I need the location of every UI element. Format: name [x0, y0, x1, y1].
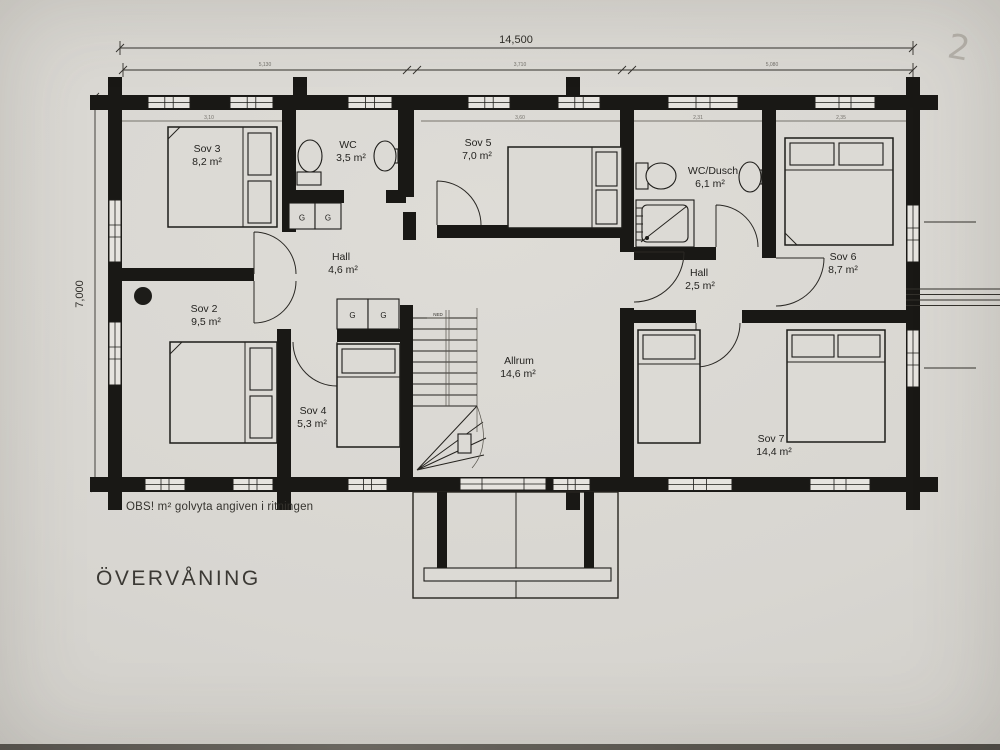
- svg-text:WC: WC: [339, 139, 357, 151]
- room-label-sov3: Sov 3 8,2 m²: [192, 143, 222, 168]
- bed-sov4: [337, 344, 400, 447]
- width-segment-2: 3,710: [514, 62, 527, 68]
- svg-text:G: G: [380, 311, 386, 320]
- svg-text:G: G: [325, 214, 331, 223]
- total-height-dimension: 7,000: [74, 280, 86, 308]
- svg-text:G: G: [349, 311, 355, 320]
- svg-text:Sov 3: Sov 3: [194, 143, 221, 155]
- bed-sov6: [785, 138, 893, 245]
- chimney-dot: [134, 287, 152, 305]
- svg-text:14,4 m²: 14,4 m²: [756, 446, 792, 458]
- balcony: [413, 492, 618, 598]
- bed-sov7-single: [638, 330, 700, 443]
- svg-text:Allrum: Allrum: [504, 355, 534, 367]
- bed-sov2: [170, 342, 277, 443]
- interior-dim-4: 2,35: [836, 115, 846, 121]
- room-label-sov5: Sov 5 7,0 m²: [462, 137, 492, 162]
- bed-sov5: [508, 147, 622, 228]
- room-label-hall-right: Hall 2,5 m²: [685, 267, 715, 292]
- svg-text:6,1 m²: 6,1 m²: [695, 178, 725, 190]
- toilet-wc-dusch: [636, 163, 676, 189]
- svg-text:WC/Dusch: WC/Dusch: [688, 165, 738, 177]
- svg-text:7,0 m²: 7,0 m²: [462, 150, 492, 162]
- svg-text:3,5 m²: 3,5 m²: [336, 152, 366, 164]
- sink-wc-dusch: [739, 162, 762, 192]
- interior-dim-1: 3,10: [204, 115, 214, 121]
- interior-dim-2: 3,60: [515, 115, 525, 121]
- svg-text:Sov 4: Sov 4: [300, 405, 327, 417]
- floor-plan-drawing: 14,500 5,130 3,710 5,080 7,000 3,10 3,60…: [0, 0, 1000, 750]
- svg-text:8,2 m²: 8,2 m²: [192, 156, 222, 168]
- svg-text:Sov 2: Sov 2: [191, 303, 218, 315]
- svg-text:4,6 m²: 4,6 m²: [328, 264, 358, 276]
- room-label-wc: WC 3,5 m²: [336, 139, 366, 164]
- interior-dim-3: 2,31: [693, 115, 703, 121]
- room-label-sov6: Sov 6 8,7 m²: [828, 251, 858, 276]
- svg-text:14,6 m²: 14,6 m²: [500, 368, 536, 380]
- sink-wc: [374, 141, 398, 171]
- svg-text:Hall: Hall: [690, 267, 708, 279]
- right-reference-lines: [906, 222, 1000, 368]
- room-label-wc-dusch: WC/Dusch 6,1 m²: [688, 165, 738, 190]
- svg-text:5,3 m²: 5,3 m²: [297, 418, 327, 430]
- total-width-dimension: 14,500: [499, 34, 533, 46]
- svg-text:2,5 m²: 2,5 m²: [685, 280, 715, 292]
- photo-bottom-edge: [0, 744, 1000, 750]
- wardrobe-hall-left: G G: [289, 203, 341, 229]
- svg-text:Sov 5: Sov 5: [465, 137, 492, 149]
- svg-text:Hall: Hall: [332, 251, 350, 263]
- svg-text:Sov 6: Sov 6: [830, 251, 857, 263]
- staircase: NED: [413, 308, 486, 470]
- scanned-floor-plan-photo: 14,500 5,130 3,710 5,080 7,000 3,10 3,60…: [0, 0, 1000, 750]
- width-segment-3: 5,080: [766, 62, 779, 68]
- wardrobe-sov4: G G: [337, 299, 399, 329]
- shower: [636, 200, 694, 247]
- page-title: ÖVERVÅNING: [96, 567, 261, 590]
- svg-text:9,5 m²: 9,5 m²: [191, 316, 221, 328]
- room-label-sov2: Sov 2 9,5 m²: [191, 303, 222, 328]
- svg-text:8,7 m²: 8,7 m²: [828, 264, 858, 276]
- width-segment-1: 5,130: [259, 62, 272, 68]
- bed-sov3: [168, 127, 277, 227]
- balcony-door: [460, 478, 546, 490]
- toilet-wc: [297, 140, 322, 185]
- room-label-allrum: Allrum 14,6 m²: [500, 355, 536, 380]
- room-label-sov4: Sov 4 5,3 m²: [297, 405, 327, 430]
- room-label-hall-left: Hall 4,6 m²: [328, 251, 358, 276]
- floor-area-note: OBS! m² golvyta angiven i ritningen: [126, 501, 313, 513]
- stairs-direction-label: NED: [433, 312, 443, 317]
- svg-text:G: G: [299, 214, 305, 223]
- bed-sov7-double: [787, 330, 885, 442]
- svg-text:Sov 7: Sov 7: [758, 433, 785, 445]
